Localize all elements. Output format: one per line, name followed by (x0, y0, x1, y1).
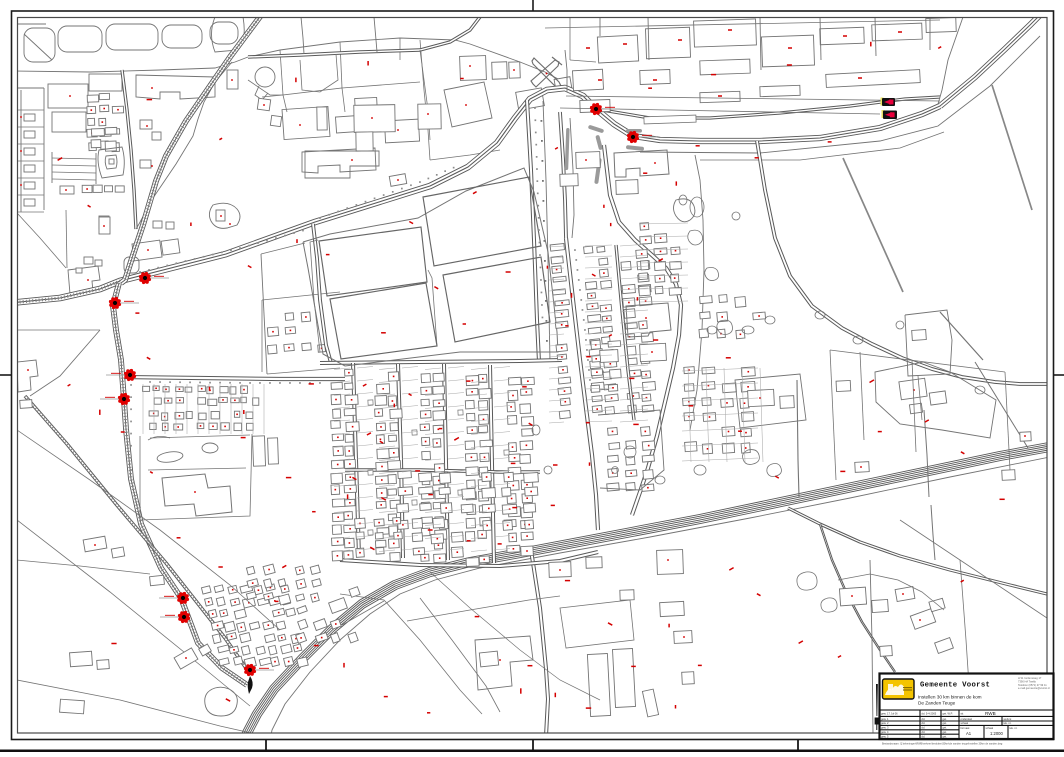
svg-text:sb.: sb. (961, 712, 965, 716)
svg-text:1:2000: 1:2000 (990, 731, 1003, 736)
svg-text:De Zanden Teuge: De Zanden Teuge (918, 701, 956, 706)
svg-text:gew. 3: gew. 3 (881, 726, 889, 730)
svg-text:RWB: RWB (985, 711, 996, 716)
svg-text:dd. 5-4-2005: dd. 5-4-2005 (922, 712, 937, 716)
svg-text:e-mail gemeente@voorst.nl: e-mail gemeente@voorst.nl (1018, 686, 1050, 690)
svg-text:formaat: formaat (961, 726, 970, 730)
svg-text:dd.: dd. (922, 717, 926, 721)
svg-text:dd.: dd. (922, 721, 926, 725)
svg-text:A1: A1 (966, 731, 972, 736)
svg-text:gew. 4: gew. 4 (881, 730, 889, 734)
svg-text:get.: get. (943, 717, 948, 721)
svg-text:dd.: dd. (922, 726, 926, 730)
svg-text:dd.: dd. (922, 734, 926, 738)
svg-text:Instellen 30 km binnen de kom: Instellen 30 km binnen de kom (918, 695, 982, 700)
svg-text:gew. 2: gew. 2 (881, 721, 889, 725)
svg-text:gew. 1: gew. 1 (881, 717, 889, 721)
svg-text:H.W. Iordensweg 17: H.W. Iordensweg 17 (1018, 676, 1042, 680)
svg-text:Telefoon (0571) 27 99 11: Telefoon (0571) 27 99 11 (1018, 683, 1047, 687)
svg-text:tek. nr.: tek. nr. (1010, 726, 1018, 730)
svg-text:get. W.P.: get. W.P. (943, 712, 953, 716)
svg-text:get.: get. (943, 721, 948, 725)
svg-text:gew. 17 Jul 06: gew. 17 Jul 06 (881, 712, 898, 716)
svg-text:get.: get. (943, 730, 948, 734)
svg-text:Bestandsnaam: Q:\tekeningen\: Bestandsnaam: Q:\tekeningen\RWB\verkeer\… (882, 743, 1003, 746)
svg-text:schaal: schaal (961, 721, 969, 725)
svg-text:schaal: schaal (986, 726, 994, 730)
svg-text:Gemeente Voorst: Gemeente Voorst (920, 682, 990, 690)
svg-text:get.: get. (943, 726, 948, 730)
svg-text:dd.: dd. (922, 730, 926, 734)
svg-text:onderdeel: onderdeel (961, 717, 973, 721)
svg-text:gew. 5: gew. 5 (881, 734, 889, 738)
svg-text:tek. nr.: tek. nr. (1004, 721, 1012, 725)
svg-text:werknr.: werknr. (1004, 717, 1013, 721)
svg-text:get.: get. (943, 734, 948, 738)
svg-text:7390 HA Twello: 7390 HA Twello (1018, 679, 1037, 683)
